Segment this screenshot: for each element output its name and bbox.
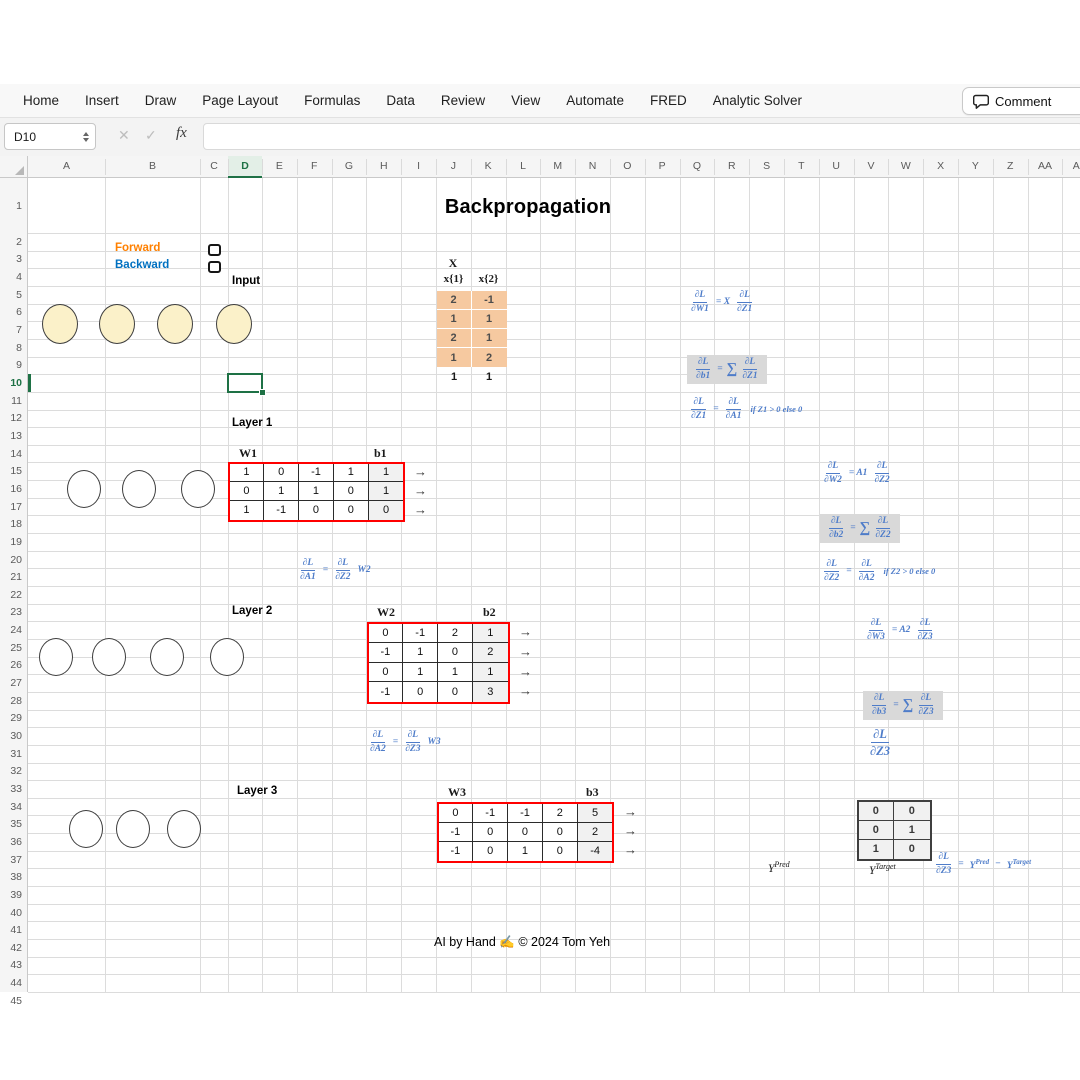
x-input-table: 2-1112112 xyxy=(437,291,507,367)
layer-label-3: Layer 3 xyxy=(237,785,277,797)
column-header-J[interactable]: J xyxy=(451,160,456,172)
weight-matrix-1-cell[interactable]: 1 xyxy=(264,482,299,501)
gridline xyxy=(297,178,298,992)
gridline xyxy=(610,178,611,992)
gridline xyxy=(575,178,576,992)
column-separator xyxy=(888,159,889,175)
fill-handle[interactable] xyxy=(259,389,266,396)
gridline xyxy=(28,251,1080,252)
weight-matrix-3-cell[interactable]: 0 xyxy=(508,823,543,842)
column-separator xyxy=(471,159,472,175)
formula-dL-dW3: ∂L∂W3= A2∂L∂Z3 xyxy=(863,618,937,643)
y-target-table-cell[interactable]: 0 xyxy=(894,802,930,821)
gridline xyxy=(923,178,924,992)
name-box-stepper[interactable] xyxy=(83,132,95,142)
footer-credit: AI by Hand ✍ © 2024 Tom Yeh xyxy=(434,935,610,950)
x-input-table-cell[interactable]: 1 xyxy=(437,348,472,367)
weight-matrix-1-cell[interactable]: -1 xyxy=(264,501,299,520)
legend-forward-label: Forward xyxy=(115,242,160,254)
formula-dL-dW2: ∂L∂W2= A1∂L∂Z2 xyxy=(820,461,894,486)
gridline xyxy=(28,233,1080,234)
column-header-AB[interactable]: AB xyxy=(1073,160,1080,172)
sheet-grid[interactable]: BackpropagationForwardBackwardInputXx{1}… xyxy=(0,178,1080,1080)
b-label-3: b3 xyxy=(586,785,599,800)
formula-input[interactable] xyxy=(203,123,1080,150)
column-separator xyxy=(610,159,611,175)
layer1-neuron[interactable] xyxy=(67,470,101,508)
x-table-title: X xyxy=(449,256,458,271)
column-header-C[interactable]: C xyxy=(210,160,218,172)
formula-dL-dZ1: ∂L∂Z1=∂L∂A1if Z1 > 0 else 0 xyxy=(687,397,802,422)
column-separator xyxy=(262,159,263,175)
input-neuron[interactable] xyxy=(157,304,193,344)
formula-dL-db2: ∂L∂b2=∑∂L∂Z2 xyxy=(820,514,900,543)
row-arrow-icon: → xyxy=(624,824,637,837)
ribbon-tab-automate[interactable]: Automate xyxy=(553,93,637,108)
select-all-corner[interactable] xyxy=(0,156,28,178)
column-separator xyxy=(540,159,541,175)
weight-matrix-2-cell[interactable]: 0 xyxy=(438,643,473,663)
gridline xyxy=(28,357,1080,358)
weight-matrix-1: 10-111011011-1000 xyxy=(228,462,406,522)
x-input-table-cell[interactable]: 1 xyxy=(472,310,507,329)
column-header-Z[interactable]: Z xyxy=(1007,160,1013,172)
weight-matrix-1-cell[interactable]: 0 xyxy=(369,501,404,520)
weight-matrix-2-cell[interactable]: 0 xyxy=(438,682,473,702)
gridline xyxy=(401,178,402,992)
weight-matrix-1-cell[interactable]: 0 xyxy=(334,482,369,501)
w-label-1: W1 xyxy=(239,446,257,461)
column-separator xyxy=(105,159,106,175)
column-separator xyxy=(993,159,994,175)
gridline xyxy=(645,178,646,992)
column-header-A[interactable]: A xyxy=(63,160,70,172)
formula-dL-db3: ∂L∂b3=∑∂L∂Z3 xyxy=(863,691,943,720)
gridline xyxy=(28,427,1080,428)
gridline xyxy=(1062,178,1063,992)
formula-dL-dZ2: ∂L∂Z2=∂L∂A2if Z2 > 0 else 0 xyxy=(820,559,935,584)
weight-matrix-3-cell[interactable]: -1 xyxy=(508,804,543,823)
x-extra-row-value[interactable]: 1 xyxy=(486,371,492,383)
weight-matrix-1-cell[interactable]: 1 xyxy=(299,482,334,501)
layer1-neuron[interactable] xyxy=(181,470,215,508)
layer-label-1: Layer 1 xyxy=(232,417,272,429)
gridline xyxy=(854,178,855,992)
y-target-label: YTarget xyxy=(869,862,896,877)
column-header-G[interactable]: G xyxy=(345,160,353,172)
x-extra-row-value[interactable]: 1 xyxy=(451,371,457,383)
column-separator xyxy=(854,159,855,175)
column-header-F[interactable]: F xyxy=(311,160,317,172)
gridline xyxy=(28,727,1080,728)
weight-matrix-1-cell[interactable]: -1 xyxy=(299,464,334,483)
ribbon-tab-view[interactable]: View xyxy=(498,93,553,108)
layer2-neuron[interactable] xyxy=(92,638,126,676)
column-separator xyxy=(200,159,201,175)
layer3-neuron[interactable] xyxy=(167,810,201,848)
comment-button[interactable]: Comment xyxy=(962,87,1080,115)
row-arrow-icon: → xyxy=(624,805,637,818)
column-header-H[interactable]: H xyxy=(380,160,388,172)
gridline xyxy=(28,904,1080,905)
column-header-S[interactable]: S xyxy=(763,160,770,172)
ribbon-tab-formulas[interactable]: Formulas xyxy=(291,93,373,108)
formula-dL-dZ3: ∂L∂Z3 xyxy=(866,727,894,759)
weight-matrix-3: 0-1-125-10002-1010-4 xyxy=(437,802,615,863)
column-header-AA[interactable]: AA xyxy=(1038,160,1052,172)
ribbon-tab-fred[interactable]: FRED xyxy=(637,93,700,108)
column-header-L[interactable]: L xyxy=(520,160,526,172)
formula-dL-dW1: ∂L∂W1= X∂L∂Z1 xyxy=(687,290,756,315)
column-separator xyxy=(332,159,333,175)
y-target-table: 000110 xyxy=(857,800,932,861)
weight-matrix-3-cell[interactable]: 2 xyxy=(543,804,578,823)
y-target-table-cell[interactable]: 0 xyxy=(894,840,930,859)
gridline xyxy=(28,657,1080,658)
column-header-D[interactable]: D xyxy=(241,160,249,172)
backward-checkbox[interactable] xyxy=(208,261,221,273)
comment-bubble-icon xyxy=(973,94,989,109)
gridline xyxy=(28,392,1080,393)
gridline xyxy=(228,178,229,992)
ribbon-tab-page-layout[interactable]: Page Layout xyxy=(189,93,291,108)
x-input-table-cell[interactable]: -1 xyxy=(472,291,507,310)
column-separator xyxy=(784,159,785,175)
fx-icon[interactable]: fx xyxy=(176,125,187,142)
gridline xyxy=(332,178,333,992)
column-separator xyxy=(1062,159,1063,175)
gridline xyxy=(28,745,1080,746)
gridline xyxy=(28,533,1080,534)
weight-matrix-3-cell[interactable]: 0 xyxy=(543,823,578,842)
ribbon-tab-insert[interactable]: Insert xyxy=(72,93,132,108)
column-headers[interactable]: ABCDEFGHIJKLMNOPQRSTUVWXYZAAAB xyxy=(0,156,1080,178)
ribbon-tab-review[interactable]: Review xyxy=(428,93,498,108)
gridline xyxy=(28,780,1080,781)
column-separator xyxy=(680,159,681,175)
column-header-W[interactable]: W xyxy=(901,160,911,172)
gridline xyxy=(28,515,1080,516)
column-header-Y[interactable]: Y xyxy=(972,160,979,172)
excel-window: { "ribbon": { "tabs": ["Home","Insert","… xyxy=(0,0,1080,1080)
weight-matrix-1-cell[interactable]: 1 xyxy=(334,464,369,483)
layer2-neuron[interactable] xyxy=(150,638,184,676)
b-label-2: b2 xyxy=(483,605,496,620)
gridline xyxy=(28,462,1080,463)
weight-matrix-2-cell[interactable]: -1 xyxy=(369,643,404,663)
x-input-table-cell[interactable]: 1 xyxy=(437,310,472,329)
w-label-2: W2 xyxy=(377,605,395,620)
input-neuron[interactable] xyxy=(216,304,252,344)
column-separator xyxy=(366,159,367,175)
column-header-V[interactable]: V xyxy=(867,160,874,172)
name-box-value: D10 xyxy=(5,130,83,144)
name-box[interactable]: D10 xyxy=(4,123,96,150)
accept-icon[interactable]: ✓ xyxy=(145,127,157,144)
column-header-B[interactable]: B xyxy=(149,160,156,172)
ribbon-tab-bar: HomeInsertDrawPage LayoutFormulasDataRev… xyxy=(0,84,1080,118)
column-separator xyxy=(1028,159,1029,175)
column-header-E[interactable]: E xyxy=(276,160,283,172)
column-header-N[interactable]: N xyxy=(589,160,597,172)
weight-matrix-2-cell[interactable]: 2 xyxy=(473,643,508,663)
weight-matrix-3-cell[interactable]: -4 xyxy=(578,842,613,861)
weight-matrix-3-cell[interactable]: 0 xyxy=(439,804,474,823)
comment-button-label: Comment xyxy=(995,94,1051,109)
weight-matrix-3-cell[interactable]: 0 xyxy=(543,842,578,861)
x-input-table-cell[interactable]: 2 xyxy=(437,291,472,310)
gridline xyxy=(28,304,1080,305)
column-separator xyxy=(436,159,437,175)
weight-matrix-3-cell[interactable]: 0 xyxy=(473,823,508,842)
weight-matrix-3-cell[interactable]: -1 xyxy=(439,842,474,861)
y-target-table-cell[interactable]: 0 xyxy=(859,802,895,821)
weight-matrix-2-cell[interactable]: -1 xyxy=(369,682,404,702)
column-header-T[interactable]: T xyxy=(798,160,804,172)
column-header-I[interactable]: I xyxy=(417,160,420,172)
ribbon-tab-draw[interactable]: Draw xyxy=(132,93,190,108)
formula-dL-dZ3-eq: ∂L∂Z3=YPred−YTarget xyxy=(932,852,1034,877)
input-neuron[interactable] xyxy=(99,304,135,344)
sheet-title: Backpropagation xyxy=(445,196,611,219)
cancel-icon[interactable]: ✕ xyxy=(118,127,130,144)
column-header-X[interactable]: X xyxy=(937,160,944,172)
gridline xyxy=(28,763,1080,764)
weight-matrix-1-cell[interactable]: 0 xyxy=(264,464,299,483)
gridline xyxy=(680,178,681,992)
weight-matrix-2-cell[interactable]: 1 xyxy=(403,643,438,663)
weight-matrix-2: 0-121-11020111-1003 xyxy=(367,622,510,704)
row-arrow-icon: → xyxy=(519,645,532,658)
column-header-U[interactable]: U xyxy=(832,160,840,172)
y-target-table-cell[interactable]: 0 xyxy=(859,821,895,840)
weight-matrix-3-cell[interactable]: 2 xyxy=(578,823,613,842)
gridline xyxy=(262,178,263,992)
weight-matrix-3-cell[interactable]: -1 xyxy=(473,804,508,823)
y-pred-label: YPred xyxy=(768,860,790,875)
column-header-M[interactable]: M xyxy=(553,160,562,172)
x-col-header-1: x{1} xyxy=(444,273,464,285)
gridline xyxy=(28,604,1080,605)
weight-matrix-1-cell[interactable]: 0 xyxy=(230,482,265,501)
weight-matrix-1-cell[interactable]: 1 xyxy=(230,464,265,483)
layer-label-2: Layer 2 xyxy=(232,605,272,617)
y-target-table-cell[interactable]: 1 xyxy=(859,840,895,859)
weight-matrix-2-cell[interactable]: 1 xyxy=(473,624,508,644)
weight-matrix-1-cell[interactable]: 0 xyxy=(299,501,334,520)
formula-dL-dA2: ∂L∂A2=∂L∂Z3W3 xyxy=(366,730,444,755)
row-arrow-icon: → xyxy=(519,625,532,638)
weight-matrix-2-cell[interactable]: -1 xyxy=(403,624,438,644)
gridline xyxy=(28,992,1080,993)
row-arrow-icon: → xyxy=(414,484,427,497)
column-header-Q[interactable]: Q xyxy=(693,160,701,172)
weight-matrix-2-cell[interactable]: 0 xyxy=(369,624,404,644)
weight-matrix-2-cell[interactable]: 3 xyxy=(473,682,508,702)
column-separator xyxy=(506,159,507,175)
weight-matrix-1-cell[interactable]: 1 xyxy=(230,501,265,520)
input-neuron[interactable] xyxy=(42,304,78,344)
weight-matrix-2-cell[interactable]: 0 xyxy=(369,663,404,683)
ribbon-tab-data[interactable]: Data xyxy=(373,93,428,108)
gridline xyxy=(540,178,541,992)
weight-matrix-2-cell[interactable]: 2 xyxy=(438,624,473,644)
b-label-1: b1 xyxy=(374,446,387,461)
gridline xyxy=(28,286,1080,287)
gridline xyxy=(200,178,201,992)
gridline xyxy=(28,886,1080,887)
weight-matrix-2-cell[interactable]: 1 xyxy=(473,663,508,683)
gridline xyxy=(28,868,1080,869)
column-separator xyxy=(297,159,298,175)
ribbon-tab-home[interactable]: Home xyxy=(10,93,72,108)
column-separator xyxy=(923,159,924,175)
gridline xyxy=(819,178,820,992)
weight-matrix-1-cell[interactable]: 0 xyxy=(334,501,369,520)
layer3-neuron[interactable] xyxy=(116,810,150,848)
gridline xyxy=(28,551,1080,552)
y-target-table-cell[interactable]: 1 xyxy=(894,821,930,840)
weight-matrix-3-cell[interactable]: 0 xyxy=(473,842,508,861)
gridline xyxy=(28,374,1080,375)
gridline xyxy=(28,674,1080,675)
column-separator xyxy=(819,159,820,175)
column-header-K[interactable]: K xyxy=(485,160,492,172)
input-label: Input xyxy=(232,275,260,287)
gridline xyxy=(28,974,1080,975)
gridline xyxy=(366,178,367,992)
layer1-neuron[interactable] xyxy=(122,470,156,508)
gridline xyxy=(28,957,1080,958)
column-separator xyxy=(958,159,959,175)
layer2-neuron[interactable] xyxy=(210,638,244,676)
column-separator xyxy=(714,159,715,175)
column-separator xyxy=(228,159,229,175)
x-input-table-cell[interactable]: 2 xyxy=(437,329,472,348)
weight-matrix-2-cell[interactable]: 1 xyxy=(403,663,438,683)
gridline xyxy=(105,178,106,992)
weight-matrix-2-cell[interactable]: 0 xyxy=(403,682,438,702)
selected-cell[interactable] xyxy=(227,373,263,393)
weight-matrix-3-cell[interactable]: 1 xyxy=(508,842,543,861)
row-arrow-icon: → xyxy=(519,684,532,697)
weight-matrix-1-cell[interactable]: 1 xyxy=(369,482,404,501)
column-header-P[interactable]: P xyxy=(659,160,666,172)
legend-backward-label: Backward xyxy=(115,259,169,271)
x-col-header-2: x{2} xyxy=(479,273,499,285)
gridline xyxy=(28,268,1080,269)
column-separator xyxy=(575,159,576,175)
column-header-O[interactable]: O xyxy=(623,160,631,172)
gridline xyxy=(28,586,1080,587)
weight-matrix-3-cell[interactable]: 5 xyxy=(578,804,613,823)
gridline xyxy=(28,445,1080,446)
column-separator xyxy=(401,159,402,175)
forward-checkbox[interactable] xyxy=(208,244,221,256)
selected-row-indicator xyxy=(28,374,31,392)
layer3-neuron[interactable] xyxy=(69,810,103,848)
gridline xyxy=(28,410,1080,411)
column-header-R[interactable]: R xyxy=(728,160,736,172)
column-separator xyxy=(645,159,646,175)
x-input-table-cell[interactable]: 2 xyxy=(472,348,507,367)
column-separator xyxy=(749,159,750,175)
layer2-neuron[interactable] xyxy=(39,638,73,676)
formula-dL-dA1: ∂L∂A1=∂L∂Z2W2 xyxy=(296,558,374,583)
row-arrow-icon: → xyxy=(519,665,532,678)
row-arrow-icon: → xyxy=(414,465,427,478)
row-arrow-icon: → xyxy=(414,503,427,516)
ribbon-tab-analytic-solver[interactable]: Analytic Solver xyxy=(700,93,815,108)
formula-dL-db1: ∂L∂b1=∑∂L∂Z1 xyxy=(687,355,767,384)
weight-matrix-3-cell[interactable]: -1 xyxy=(439,823,474,842)
gridline xyxy=(28,921,1080,922)
x-input-table-cell[interactable]: 1 xyxy=(472,329,507,348)
row-arrow-icon: → xyxy=(624,843,637,856)
w-label-3: W3 xyxy=(448,785,466,800)
weight-matrix-2-cell[interactable]: 1 xyxy=(438,663,473,683)
weight-matrix-1-cell[interactable]: 1 xyxy=(369,464,404,483)
